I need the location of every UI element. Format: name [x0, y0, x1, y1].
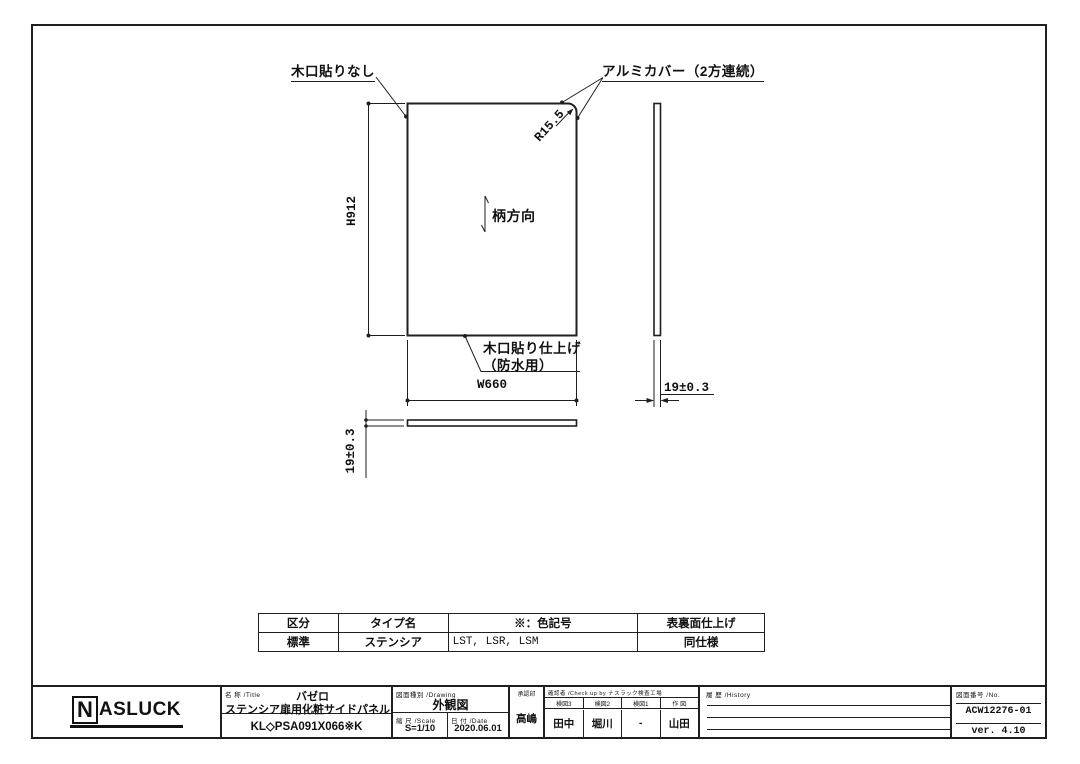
edge-no-band-label: 木口貼りなし: [291, 60, 375, 82]
number-section: 図面番号 /No. ACW12276-01 ver. 4.10: [952, 687, 1045, 737]
check-col-value: 山田: [661, 710, 699, 738]
approval-section: 承認印 高嶋: [510, 687, 545, 737]
check-col-label: 作 図: [661, 698, 699, 708]
check-section: 確認者 /Check up by ナスラック検査工場 検図3 検図2 検図1 作…: [545, 687, 700, 737]
check-header: 確認者 /Check up by ナスラック検査工場: [545, 687, 698, 698]
history-rule: [707, 705, 950, 706]
height-dim-label: H912: [345, 181, 359, 241]
history-rule: [707, 717, 950, 718]
grain-direction-label: 柄方向: [492, 206, 536, 226]
history-label: 履 歴 /History: [706, 689, 751, 699]
spec-header-type: タイプ名: [338, 614, 448, 633]
number-rule: [956, 723, 1041, 724]
drawing-type-cell: 図面種別 /Drawing 外観図: [393, 687, 508, 713]
scale-value: S=1/10: [393, 723, 447, 734]
logo-section: N ASLUCK: [33, 687, 222, 737]
edge-band-finish-label-line2: （防水用）: [483, 354, 553, 374]
nasluck-logo: N ASLUCK: [70, 696, 183, 728]
drawing-number-label: 図面番号 /No.: [956, 689, 1000, 699]
drawing-type-value: 外観図: [393, 696, 508, 713]
check-col-value: -: [622, 710, 661, 738]
check-subheaders: 検図3 検図2 検図1 作 図: [545, 698, 698, 709]
history-rule: [707, 729, 950, 730]
alumi-cover-label: アルミカバー（2方連続）: [602, 60, 764, 82]
history-section: 履 歴 /History: [700, 687, 952, 737]
scale-cell: 縮 尺 /Scale S=1/10: [393, 713, 448, 737]
check-col-label: 検図1: [622, 698, 661, 708]
spec-cell-type: ステンシア: [338, 633, 448, 652]
bottom-thickness-dim-label: 19±0.3: [344, 421, 358, 481]
spec-table: 区分 タイプ名 ※：色記号 表裏面仕上げ 標準 ステンシア LST, LSR, …: [258, 613, 765, 652]
title-block: N ASLUCK 名 称 /Title バゼロ ステンシア扉用化粧サイドパネル …: [33, 685, 1045, 737]
drawing-info-section: 図面種別 /Drawing 外観図 縮 尺 /Scale S=1/10 日 付 …: [393, 687, 510, 737]
check-col-label: 検図2: [584, 698, 623, 708]
date-cell: 日 付 /Date 2020.06.01: [448, 713, 508, 737]
width-dim-label: W660: [462, 378, 522, 392]
title-label: 名 称 /Title: [225, 689, 260, 699]
title-top-cell: 名 称 /Title バゼロ ステンシア扉用化粧サイドパネル: [222, 687, 391, 714]
side-thickness-dim-label: 19±0.3: [664, 381, 709, 395]
version: ver. 4.10: [952, 726, 1045, 737]
check-col-value: 堀川: [584, 710, 623, 738]
approval-name: 高嶋: [510, 711, 543, 726]
drawing-number: ACW12276-01: [952, 706, 1045, 717]
model-code: KL◇PSA091X066※K: [222, 719, 391, 733]
approval-label: 承認印: [510, 689, 543, 698]
title-section: 名 称 /Title バゼロ ステンシア扉用化粧サイドパネル KL◇PSA091…: [222, 687, 393, 737]
logo-letter-n: N: [72, 696, 98, 724]
spec-table-data-row: 標準 ステンシア LST, LSR, LSM 同仕様: [259, 633, 765, 652]
spec-cell-kubun: 標準: [259, 633, 339, 652]
check-label: 確認者 /Check up by ナスラック検査工場: [548, 689, 662, 697]
spec-cell-colorcode: LST, LSR, LSM: [448, 633, 638, 652]
spec-cell-finish: 同仕様: [638, 633, 765, 652]
number-rule: [956, 703, 1041, 704]
drawing-sheet: 木口貼りなし アルミカバー（2方連続） R15.5 H912 柄方向 木口貼り仕…: [0, 0, 1080, 764]
logo-letters-asluck: ASLUCK: [99, 699, 181, 721]
product-name: ステンシア扉用化粧サイドパネル: [225, 701, 390, 717]
check-values: 田中 堀川 - 山田: [545, 710, 698, 738]
spec-header-finish: 表裏面仕上げ: [638, 614, 765, 633]
check-col-value: 田中: [545, 710, 584, 738]
spec-table-header-row: 区分 タイプ名 ※：色記号 表裏面仕上げ: [259, 614, 765, 633]
spec-header-kubun: 区分: [259, 614, 339, 633]
spec-header-colorcode: ※：色記号: [448, 614, 638, 633]
check-col-label: 検図3: [545, 698, 584, 708]
date-value: 2020.06.01: [448, 723, 508, 734]
